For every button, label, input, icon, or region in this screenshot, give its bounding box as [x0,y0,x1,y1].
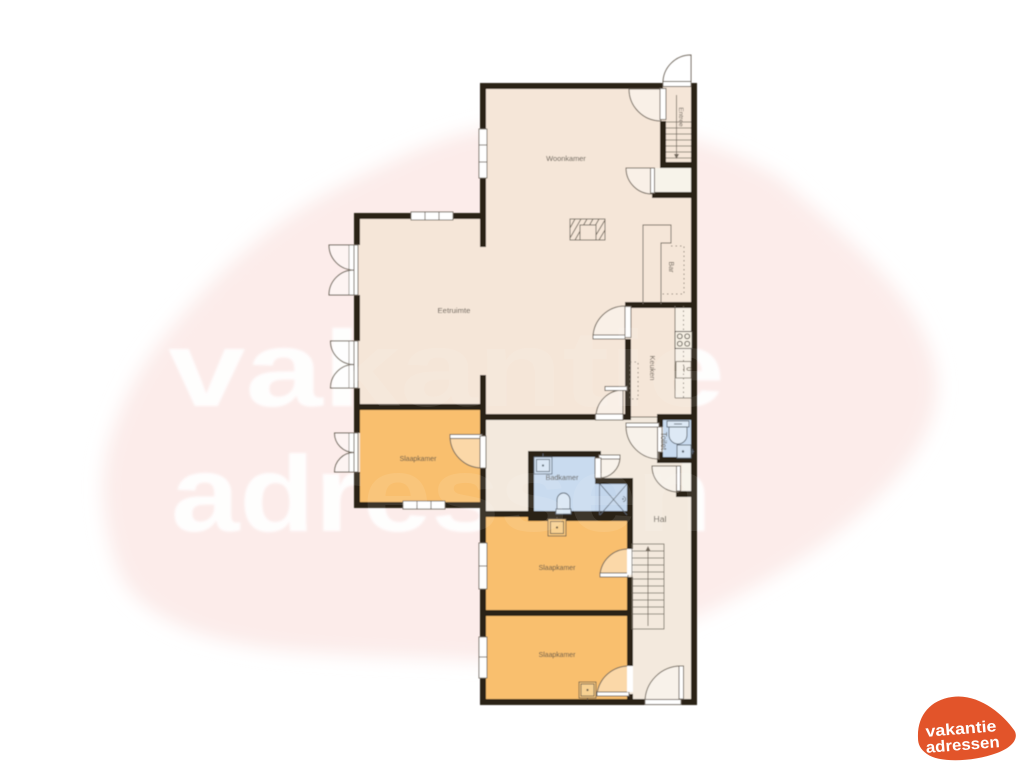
svg-text:Entree: Entree [677,107,684,127]
svg-text:vakantie: vakantie [168,308,725,429]
svg-text:Slaapkamer: Slaapkamer [539,565,576,572]
svg-text:adressen: adressen [171,433,712,554]
svg-text:Bar: Bar [667,262,674,274]
svg-text:Woonkamer: Woonkamer [546,154,586,163]
svg-text:Slaapkamer: Slaapkamer [539,652,576,659]
